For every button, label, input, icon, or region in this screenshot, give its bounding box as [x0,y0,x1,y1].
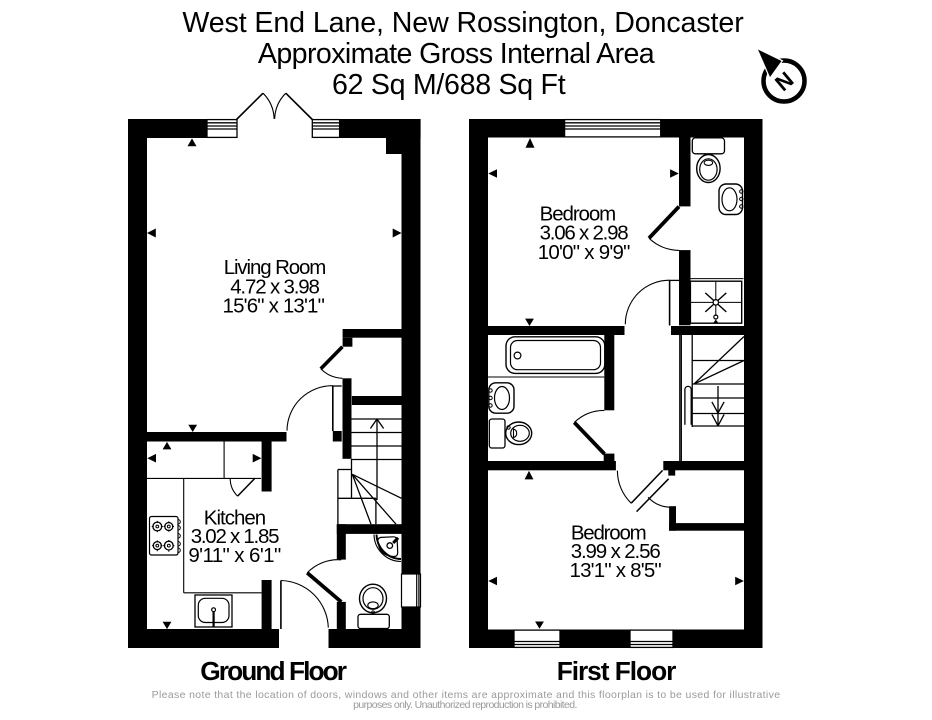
svg-text:15'6" x 13'1": 15'6" x 13'1" [223,295,325,318]
svg-text:10'0" x 9'9": 10'0" x 9'9" [538,241,630,264]
svg-text:Approximate Gross Internal Are: Approximate Gross Internal Area [258,38,655,70]
svg-text:First Floor: First Floor [557,656,676,686]
svg-text:Ground Floor: Ground Floor [200,656,347,686]
svg-text:13'1" x 8'5": 13'1" x 8'5" [569,559,661,582]
svg-text:West End Lane, New Rossington,: West End Lane, New Rossington, Doncaster [182,7,744,39]
svg-text:purposes only. Unauthorized re: purposes only. Unauthorized reproduction… [353,699,577,711]
svg-text:62 Sq M/688 Sq Ft: 62 Sq M/688 Sq Ft [332,69,566,101]
svg-text:9'11" x 6'1": 9'11" x 6'1" [188,544,281,567]
